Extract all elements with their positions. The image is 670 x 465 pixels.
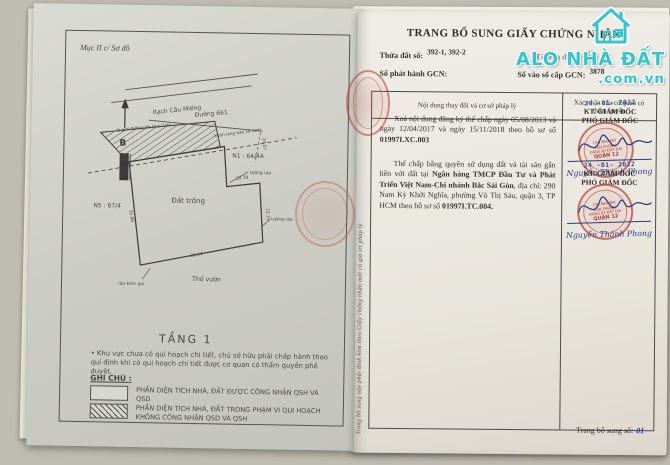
- side-margin-note: Trang bổ sung này phải đính kèm theo Giấ…: [356, 139, 365, 435]
- fence-label-2: tường rào: [271, 215, 293, 222]
- neighbor-right-label: N1 : 64/4A: [232, 153, 265, 161]
- entry-mortgage-release: Xoá nội dung đăng ký thế chấp ngày 05/08…: [380, 114, 556, 147]
- edge-seal-stamp: [346, 70, 390, 136]
- page-footer: Trang bổ sung số:01: [576, 426, 644, 436]
- signer-name: Nguyễn Thành Phong: [563, 229, 655, 240]
- legend-text-not-recognized: PHẦN DIỆN TÍCH NHÀ, ĐẤT TRONG PHẠM VI QU…: [136, 404, 326, 424]
- floor-label: TẦNG 1: [159, 332, 213, 346]
- watermark: ALO NHÀ ĐẤT .com.vn: [487, 4, 665, 87]
- fence-leader-2: [262, 220, 269, 226]
- legend-swatch-hatched: [90, 403, 128, 419]
- confirmation-block-2: 24 -01- 2022 KT. GIÁM ĐỐC PHÓ GIÁM ĐỐC C…: [563, 161, 656, 239]
- footer-label: Trang bổ sung số:: [576, 426, 633, 435]
- gcn-issue-label: Số phát hành GCN:: [379, 69, 447, 79]
- road-label: Đường 661: [194, 109, 228, 119]
- watermark-domain: .com.vn: [487, 71, 665, 87]
- photo-of-land-certificate: { "watermark": { "brand": "ALO NHÀ ĐẤT",…: [0, 0, 670, 465]
- road-dim: 20.07: [262, 138, 268, 151]
- legend-text-recognized: PHẦN DIỆN TÍCH NHÀ, ĐẤT ĐƯỢC CÔNG NHẬN Q…: [136, 386, 326, 406]
- dim-bottom: 21.64: [190, 251, 204, 259]
- entry1-text: Xoá nội dung đăng ký thế chấp ngày 05/08…: [380, 114, 556, 135]
- garden-label: Thổ vườn: [191, 274, 221, 284]
- parcel-label: Đất trống: [171, 197, 205, 206]
- parcel-boundary: [127, 145, 264, 267]
- legend-title: GHI CHÚ :: [90, 373, 131, 383]
- entry-mortgage-registration: Thế chấp bằng quyền sử dụng đất và tài s…: [379, 159, 555, 213]
- barbed-wire-label: rào kẽm gai: [118, 280, 144, 287]
- canal-lines: [111, 72, 258, 106]
- dim-step: 10.78: [235, 175, 248, 182]
- parcel-number-value: 392-1, 392-2: [423, 47, 466, 56]
- entry1-file-number: 01997I.XC.003: [380, 135, 429, 144]
- fence-label-1: tường rào: [250, 169, 272, 176]
- overlap-seal-stamp: [295, 181, 355, 247]
- dim-right: 12.19: [264, 208, 271, 221]
- house-icon: [583, 4, 639, 46]
- gcn-issue-field: Số phát hành GCN:: [379, 69, 447, 79]
- planning-note-text: Khu vực chưa có qui hoạch chi tiết, chủ …: [90, 349, 328, 376]
- watermark-brand: ALO NHÀ ĐẤT: [487, 51, 665, 69]
- column-divider: [559, 93, 563, 429]
- entry2-file-number: 01997I.TC.004.: [442, 201, 493, 210]
- parcel-number-field: Thửa đất số:392-1, 392-2: [380, 51, 466, 61]
- footer-page-number: 01: [633, 426, 644, 435]
- barbed-leader: [142, 268, 150, 279]
- changes-table: Nội dung thay đổi và cơ sở pháp lý Xác n…: [368, 91, 657, 431]
- parcel-number-label: Thửa đất số:: [380, 51, 424, 60]
- neighbor-left-label: N5 : 67/4: [93, 202, 121, 209]
- signature-zone: CHI NHÁNH VĂN PHÒNG ĐĂNG KÝ ĐẤT ĐAI QUẬN…: [563, 188, 655, 229]
- legend-swatch-empty: [90, 385, 128, 401]
